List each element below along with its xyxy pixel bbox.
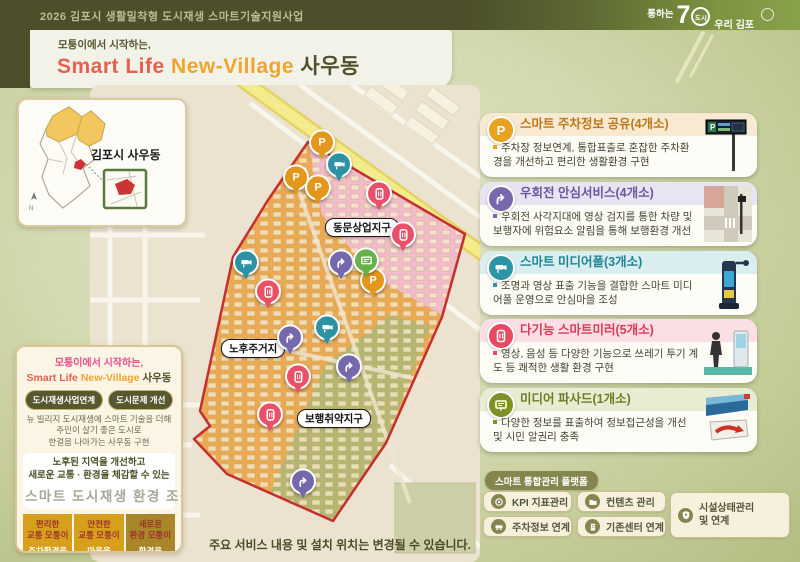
logo-number: 7 [677,4,691,27]
project-summary-panel: 모퉁이에서 시작하는, Smart Life New-Village 사우동 도… [15,345,183,553]
tag-urban-problem-improve: 도시문제 개선 [108,390,173,410]
rightturn-pin [336,353,362,379]
facade-pin [353,247,379,273]
service-desc: 다양한 정보를 표출하여 정보접근성을 개선 및 시민 알권리 충족 [493,417,687,443]
district-label-pedestrian: 보행취약지구 [297,409,371,428]
service-desc: 우회전 사각지대에 영상 검지를 통한 차량 및 보행자에 위험요소 알림을 통… [493,211,692,237]
cctv-pin [314,314,340,340]
goal-line-1: 노후된 지역을 개선하고 [25,457,173,470]
title-new-village: New-Village [171,55,294,78]
service-desc: 주차장 정보연계, 통합표출로 혼잡한 주차환경을 개선하고 편리한 생활환경 … [493,142,689,168]
media-facade-image [704,392,752,448]
platform-box-facility: 시설상태관리 및 연계 [670,492,790,538]
program-title: 2026 김포시 생활밀착형 도시재생 스마트기술지원사업 [40,8,304,24]
poster: 2026 김포시 생활밀착형 도시재생 스마트기술지원사업 통하는 7 도시 우… [0,0,800,562]
map-overlay: 동문상업지구 노후주거지 보행취약지구 PPPP [185,85,480,530]
locator-map-card: N 김포시 사우동 [17,98,187,227]
rightturn-pin [328,249,354,275]
service-desc: 조명과 영상 표출 기능을 결합한 스마트 미디어폴 운영으로 안심마을 조성 [493,280,692,306]
title-smart-life: Smart Life [57,55,165,78]
service-card-right-turn: 우회전 안심서비스(4개소) 우회전 사각지대에 영상 검지를 통한 차량 및 … [480,182,757,246]
goal-column-parking: 편리한 교통 모퉁이 주차환경을 편리하게 [23,514,72,553]
mirror-pin [390,221,416,247]
mirror-pin [366,180,392,206]
svg-text:P: P [710,123,716,132]
bullet [493,351,497,355]
service-card-smart-mirror: 다기능 스마트미러(5개소) 영상, 음성 등 다양한 기능으로 쓰레기 투기 … [480,319,757,383]
goal-columns: 편리한 교통 모퉁이 주차환경을 편리하게 안전한 교통 모퉁이 마을을 안전하… [23,514,175,553]
platform-box-kpi: KPI 지표관리 [483,491,572,512]
platform-box-content: 컨텐츠 관리 [577,491,666,512]
bullet [493,283,497,287]
intersection-image [704,186,752,242]
district-label-commercial: 동문상업지구 [325,218,399,237]
parking-pin: P [309,129,335,155]
parking-sign-image: P [704,117,752,173]
platform-badge: 스마트 통합관리 플랫폼 [485,471,598,490]
rightturn-pin [277,324,303,350]
building-icon [585,519,600,534]
service-card-media-pole: 스마트 미디어폴(3개소) 조명과 영상 표출 기능을 결합한 스마트 미디어폴… [480,251,757,315]
goal-column-safety: 안전한 교통 모퉁이 마을을 안전하게 [74,514,123,553]
goal-column-environment: 새로운 환경 모퉁이 환경을 새롭게 [126,514,175,553]
logo-emblem-icon [761,8,774,21]
title-sawoo-dong: 사우동 [300,55,359,78]
platform-box-parking-link: 주차정보 연계 [483,516,572,537]
mirror-pin [257,401,283,427]
goal-highlight: 스마트 도시재생 환경 조성 [25,485,173,505]
platform-box-center-link: 기존센터 연계 [577,516,666,537]
media-pole-image [704,255,752,311]
service-card-media-facade: 미디어 파사드(1개소) 다양한 정보를 표출하여 정보접근성을 개선 및 시민… [480,388,757,452]
panel-goal-box: 노후된 지역을 개선하고 새로운 교통 · 환경을 체감할 수 있는 스마트 도… [23,453,175,509]
logo-name: 우리 김포 [714,16,754,31]
mirror-pin [255,278,281,304]
panel-description: 뉴 빌리지 도시재생에 스마트 기술을 더해 주민이 살기 좋은 도시로 한걸음… [23,414,175,448]
footnote: 주요 서비스 내용 및 설치 위치는 변경될 수 있습니다. [190,536,490,553]
panel-subtitle: 모퉁이에서 시작하는, [23,354,175,369]
gimpo-city-logo: 통하는 7 도시 우리 김포 [647,4,774,31]
title-box: 모퉁이에서 시작하는, Smart Life New-Village 사우동 [30,30,452,88]
bullet [493,420,497,424]
parking-pin: P [305,174,331,200]
goal-line-2: 새로운 교통 · 환경을 체감할 수 있는 [25,470,173,483]
smart-mirror-image [704,323,752,379]
page-title: Smart Life New-Village 사우동 [57,50,360,80]
mirror-pin [285,363,311,389]
bullet [493,214,497,218]
service-desc: 영상, 음성 등 다양한 기능으로 쓰레기 투기 계도 등 쾌적한 생활 환경 … [493,348,698,374]
bullet [493,145,497,149]
locator-label: 김포시 사우동 [91,146,161,163]
cctv-pin [233,249,259,275]
service-card-parking: P 스마트 주차정보 공유(4개소) 주차장 정보연계, 통합표출로 혼잡한 주… [480,113,757,177]
car-icon [491,519,506,534]
shield-pin-icon [678,508,693,523]
district-label-old-residential: 노후주거지 [221,339,285,358]
folder-icon [585,494,600,509]
svg-text:N: N [29,206,33,212]
logo-tagline: 통하는 [647,6,673,20]
tag-urban-regeneration-link: 도시재생사업연계 [25,390,104,410]
panel-tags: 도시재생사업연계 도시문제 개선 [23,390,175,410]
rightturn-pin [290,468,316,494]
kpi-target-icon [491,494,506,509]
panel-title: Smart Life New-Village 사우동 [23,370,175,385]
cctv-pin [326,151,352,177]
logo-circle-icon: 도시 [691,7,710,26]
top-band-corner [0,30,30,88]
